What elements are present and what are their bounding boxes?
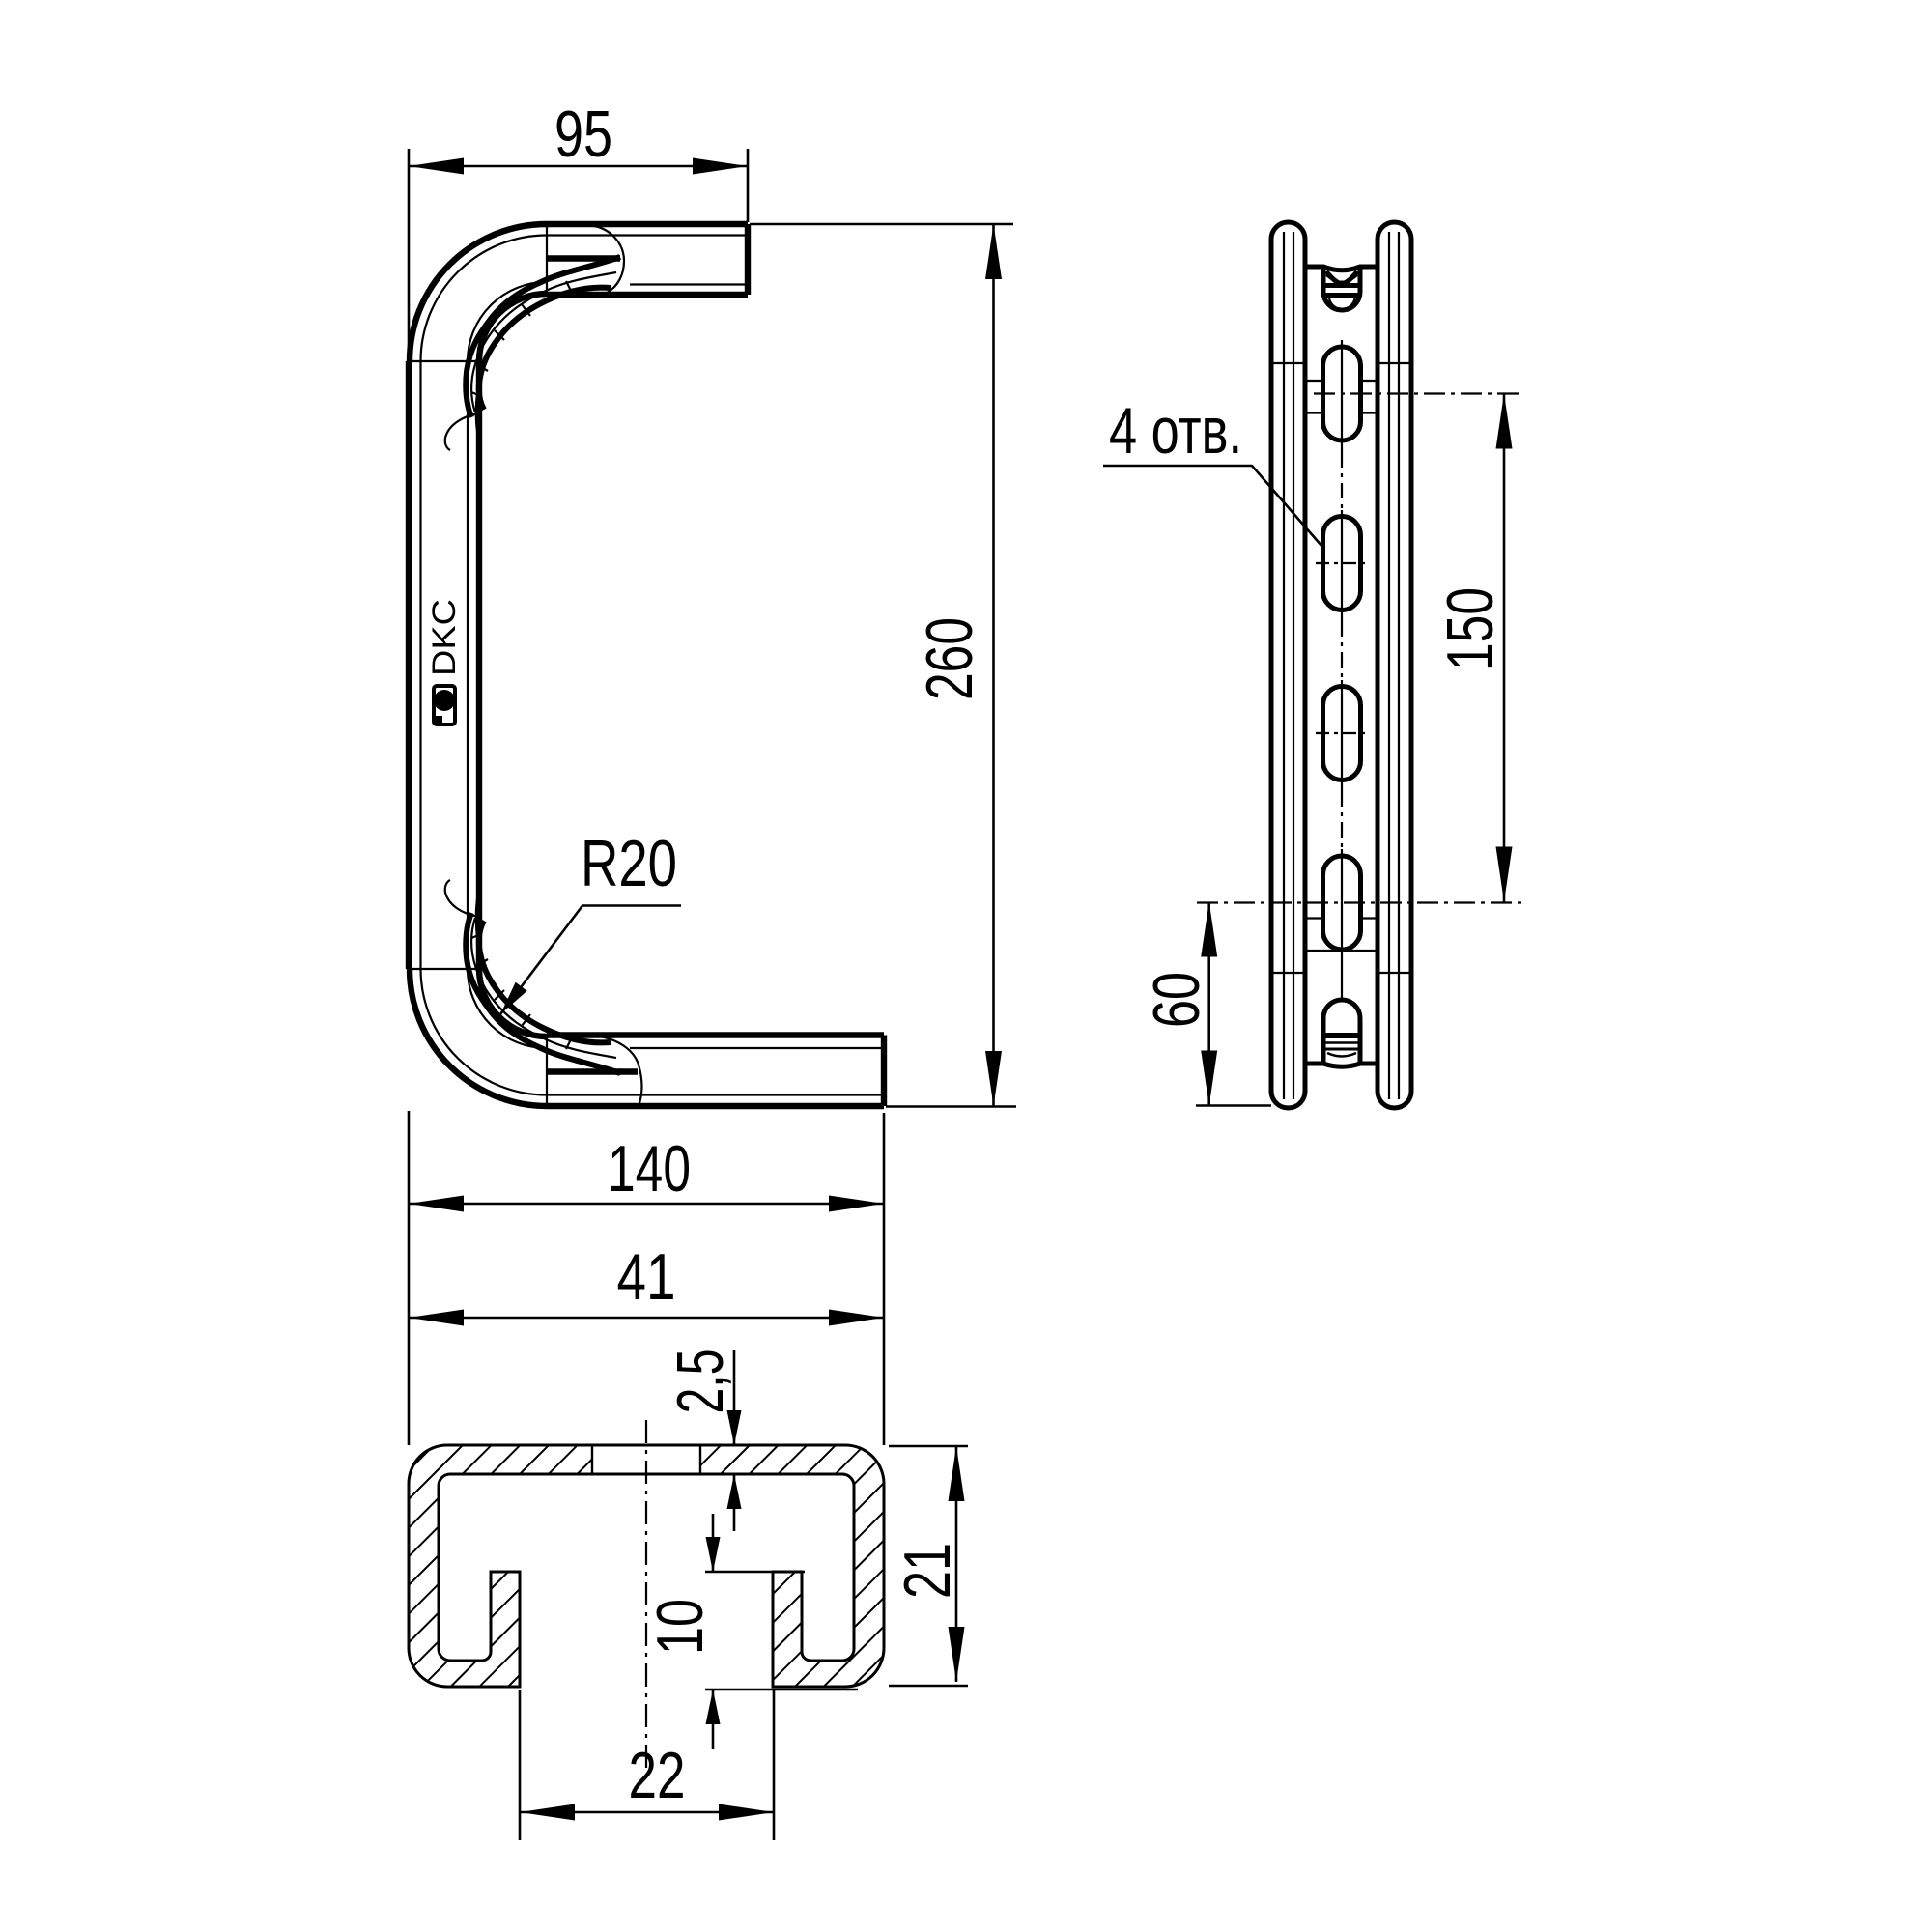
svg-text:150: 150 — [1434, 587, 1507, 670]
svg-text:R20: R20 — [581, 827, 677, 900]
svg-text:4 отв.: 4 отв. — [1109, 394, 1242, 468]
svg-text:140: 140 — [608, 1132, 691, 1206]
svg-text:DKC: DKC — [426, 599, 463, 676]
svg-text:41: 41 — [617, 1240, 676, 1314]
svg-text:95: 95 — [554, 98, 612, 171]
svg-text:60: 60 — [1140, 972, 1213, 1028]
svg-text:10: 10 — [643, 1599, 717, 1655]
svg-text:21: 21 — [891, 1543, 964, 1599]
svg-text:260: 260 — [913, 617, 986, 700]
svg-text:2,5: 2,5 — [664, 1350, 737, 1414]
svg-text:22: 22 — [629, 1739, 686, 1812]
